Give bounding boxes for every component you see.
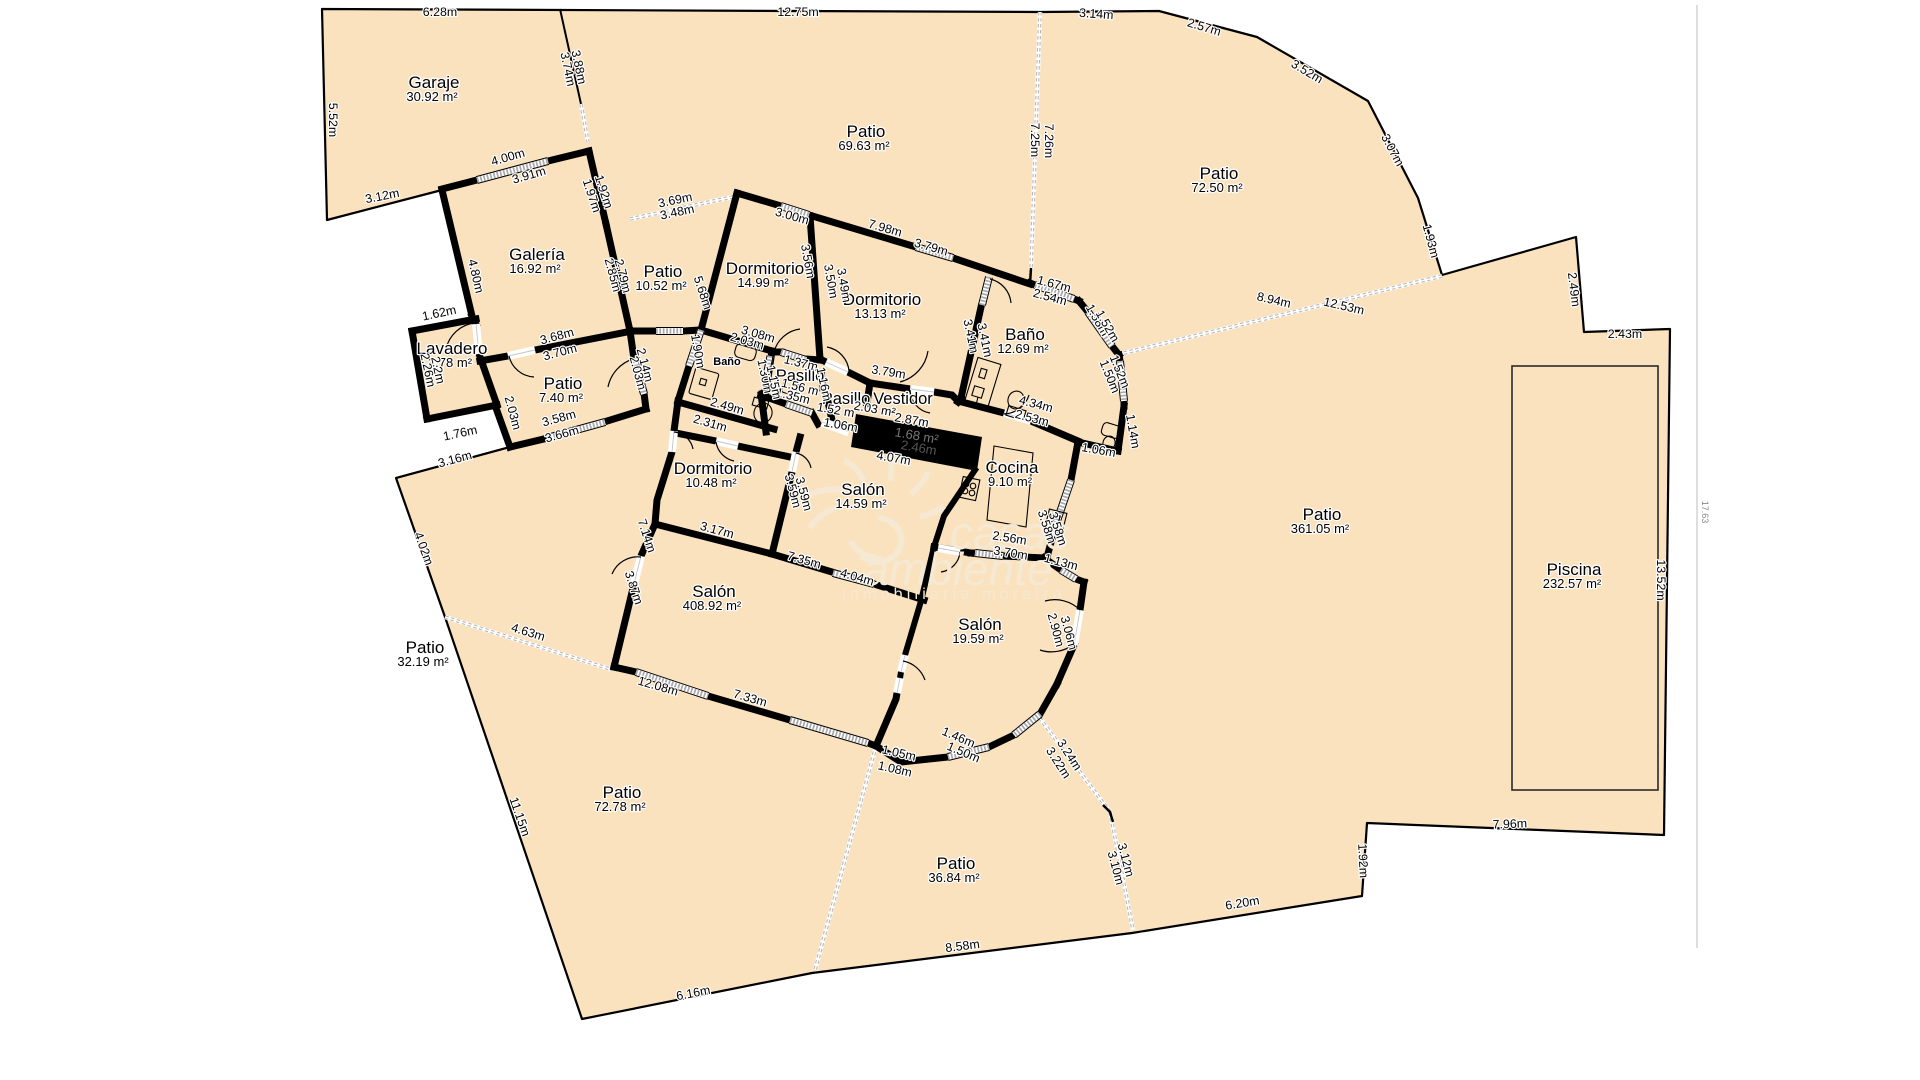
svg-text:232.57 m²: 232.57 m²	[1543, 576, 1602, 591]
svg-text:9.10 m²: 9.10 m²	[988, 474, 1033, 489]
svg-text:12.75m: 12.75m	[777, 5, 818, 19]
svg-text:72.78 m²: 72.78 m²	[594, 799, 646, 814]
svg-text:7.25m: 7.25m	[1028, 123, 1042, 157]
svg-text:14.59 m²: 14.59 m²	[835, 496, 887, 511]
svg-text:7.96m: 7.96m	[1492, 816, 1527, 831]
svg-text:36.84 m²: 36.84 m²	[928, 870, 980, 885]
svg-text:361.05 m²: 361.05 m²	[1291, 521, 1350, 536]
svg-text:7.40 m²: 7.40 m²	[539, 390, 584, 405]
svg-text:3.14m: 3.14m	[1079, 6, 1114, 22]
svg-text:13.52m: 13.52m	[1654, 559, 1668, 600]
svg-text:Baño: Baño	[713, 356, 741, 368]
svg-text:69.63 m²: 69.63 m²	[838, 138, 890, 153]
svg-text:17.63: 17.63	[1700, 501, 1710, 524]
svg-text:12.69 m²: 12.69 m²	[997, 341, 1049, 356]
svg-text:72.50 m²: 72.50 m²	[1191, 180, 1243, 195]
svg-text:32.19 m²: 32.19 m²	[397, 654, 449, 669]
svg-text:5.52m: 5.52m	[326, 103, 340, 137]
svg-text:13.13 m²: 13.13 m²	[854, 306, 906, 321]
svg-text:16.92 m²: 16.92 m²	[509, 261, 561, 276]
svg-text:408.92 m²: 408.92 m²	[683, 598, 742, 613]
svg-text:19.59 m²: 19.59 m²	[952, 631, 1004, 646]
svg-text:inmobiliaria moraira: inmobiliaria moraira	[842, 586, 1066, 603]
svg-text:10.48 m²: 10.48 m²	[685, 475, 737, 490]
svg-text:10.52 m²: 10.52 m²	[635, 278, 687, 293]
svg-text:14.99 m²: 14.99 m²	[737, 275, 789, 290]
svg-text:6.28m: 6.28m	[423, 5, 457, 19]
svg-text:30.92 m²: 30.92 m²	[406, 89, 458, 104]
svg-text:2.43m: 2.43m	[1608, 327, 1642, 341]
svg-text:1.92m: 1.92m	[1355, 843, 1371, 878]
svg-text:7.26m: 7.26m	[1042, 124, 1056, 158]
